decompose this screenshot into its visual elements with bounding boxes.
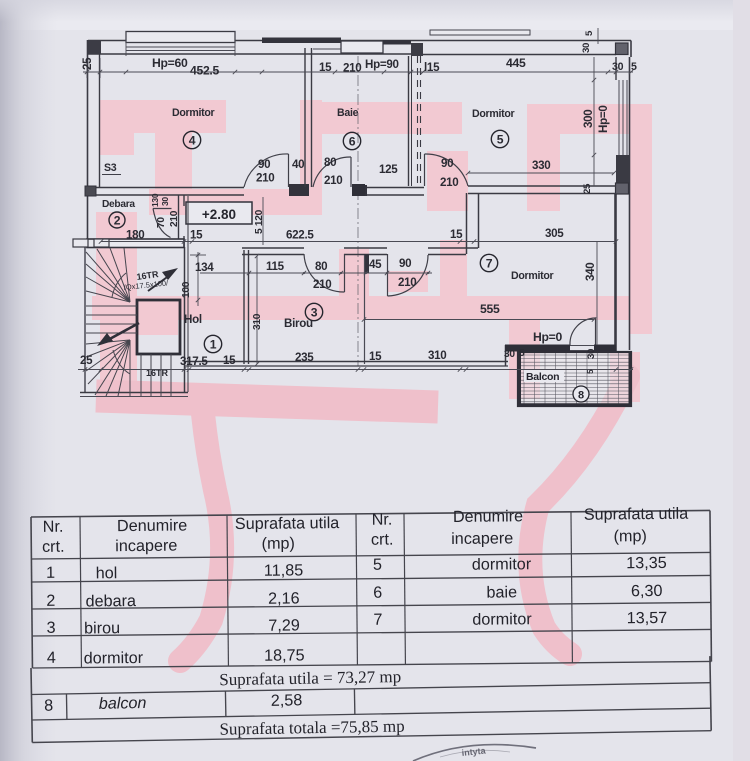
svg-text:125: 125 — [379, 163, 398, 176]
svg-text:Hp=0: Hp=0 — [597, 106, 610, 133]
svg-text:l15: l15 — [424, 61, 440, 74]
svg-text:5: 5 — [497, 132, 504, 146]
svg-text:Suprafata utila: Suprafata utila — [584, 505, 689, 524]
svg-text:210: 210 — [169, 210, 180, 227]
svg-text:317.5: 317.5 — [180, 355, 208, 368]
svg-text:445: 445 — [506, 56, 526, 70]
svg-text:crt.: crt. — [371, 531, 394, 549]
svg-text:2: 2 — [114, 213, 121, 227]
svg-text:birou: birou — [84, 619, 120, 637]
svg-text:2: 2 — [46, 592, 55, 610]
svg-text:7,29: 7,29 — [268, 616, 300, 634]
svg-text:debara: debara — [86, 592, 137, 610]
svg-text:5: 5 — [519, 348, 525, 359]
svg-text:305: 305 — [545, 227, 564, 240]
svg-text:210: 210 — [256, 172, 274, 185]
svg-text:100: 100 — [181, 281, 192, 298]
svg-text:Suprafata totala =75,85 mp: Suprafata totala =75,85 mp — [219, 716, 405, 738]
svg-text:25: 25 — [80, 354, 93, 367]
svg-text:Dormitor: Dormitor — [472, 108, 515, 120]
svg-text:30: 30 — [160, 197, 170, 206]
svg-text:310: 310 — [252, 313, 263, 330]
svg-text:210: 210 — [343, 62, 361, 75]
svg-text:Hp=0: Hp=0 — [533, 330, 562, 344]
svg-text:622.5: 622.5 — [286, 229, 314, 242]
svg-text:8: 8 — [578, 390, 584, 402]
svg-text:dormitor: dormitor — [84, 649, 144, 668]
svg-text:1: 1 — [210, 337, 217, 351]
svg-text:13,57: 13,57 — [627, 609, 668, 627]
svg-text:Denumire: Denumire — [117, 517, 187, 536]
svg-text:15: 15 — [369, 350, 382, 363]
svg-text:Hol: Hol — [184, 313, 202, 326]
svg-text:5: 5 — [585, 369, 595, 374]
svg-text:5: 5 — [631, 61, 637, 73]
svg-text:incapere: incapere — [451, 529, 513, 548]
svg-text:incapere: incapere — [115, 537, 177, 556]
svg-text:dormitor: dormitor — [472, 610, 532, 629]
svg-text:+2.80: +2.80 — [202, 207, 236, 222]
svg-text:115: 115 — [266, 260, 285, 273]
svg-text:90: 90 — [441, 157, 453, 170]
svg-text:Debara: Debara — [102, 199, 135, 210]
svg-text:Dormitor: Dormitor — [172, 107, 215, 119]
svg-text:6: 6 — [349, 134, 356, 148]
svg-text:30: 30 — [586, 349, 597, 359]
svg-text:180: 180 — [126, 229, 144, 242]
svg-text:15: 15 — [223, 354, 236, 367]
svg-text:crt.: crt. — [42, 538, 65, 556]
svg-text:15: 15 — [319, 61, 332, 74]
svg-text:210: 210 — [398, 276, 416, 289]
svg-text:3: 3 — [46, 619, 55, 637]
svg-text:130: 130 — [150, 193, 160, 207]
svg-text:8: 8 — [44, 697, 53, 715]
svg-text:dormitor: dormitor — [472, 555, 532, 574]
svg-text:Hp=90: Hp=90 — [365, 58, 399, 71]
svg-text:80: 80 — [315, 260, 327, 273]
svg-text:40: 40 — [292, 158, 304, 171]
svg-text:5 120: 5 120 — [254, 209, 265, 234]
svg-text:Nr.: Nr. — [43, 518, 64, 536]
svg-text:balcon: balcon — [99, 694, 147, 713]
svg-text:15: 15 — [450, 228, 463, 241]
svg-text:30: 30 — [504, 349, 515, 360]
svg-text:2,58: 2,58 — [271, 691, 303, 710]
svg-text:Suprafata utila: Suprafata utila — [235, 514, 340, 533]
svg-text:80: 80 — [324, 156, 336, 169]
svg-text:4: 4 — [47, 649, 56, 667]
svg-text:25: 25 — [582, 183, 593, 194]
svg-text:6,30: 6,30 — [631, 582, 663, 600]
svg-text:Suprafata utila = 73,27 mp: Suprafata utila = 73,27 mp — [219, 667, 401, 689]
svg-text:Nr.: Nr. — [372, 511, 393, 529]
svg-text:Hp=60: Hp=60 — [152, 56, 188, 70]
svg-text:235: 235 — [295, 351, 314, 364]
svg-text:555: 555 — [480, 302, 500, 316]
svg-text:1: 1 — [46, 564, 55, 582]
svg-text:340: 340 — [584, 263, 597, 281]
svg-text:210: 210 — [313, 278, 331, 291]
svg-text:Balcon: Balcon — [526, 371, 559, 383]
svg-text:hol: hol — [96, 564, 118, 582]
svg-text:11,85: 11,85 — [264, 561, 303, 579]
svg-text:90: 90 — [258, 158, 270, 171]
svg-text:7: 7 — [373, 611, 382, 629]
svg-text:30: 30 — [612, 61, 624, 73]
svg-text:4: 4 — [189, 133, 196, 147]
svg-text:7: 7 — [486, 256, 493, 270]
svg-text:452.5: 452.5 — [190, 64, 220, 78]
svg-text:330: 330 — [532, 159, 550, 172]
svg-text:45: 45 — [369, 258, 382, 271]
svg-text:2,16: 2,16 — [268, 589, 300, 607]
svg-text:30: 30 — [581, 43, 592, 53]
svg-text:(mp): (mp) — [262, 534, 295, 552]
svg-text:(mp): (mp) — [613, 527, 646, 545]
svg-text:baie: baie — [486, 583, 517, 601]
svg-text:13,35: 13,35 — [626, 554, 667, 572]
svg-text:15: 15 — [190, 229, 203, 242]
svg-text:Baie: Baie — [337, 107, 359, 119]
svg-text:Denumire: Denumire — [453, 507, 523, 526]
svg-text:S3: S3 — [104, 162, 117, 174]
svg-text:3: 3 — [311, 305, 318, 319]
svg-text:90: 90 — [399, 257, 411, 270]
svg-text:6: 6 — [373, 584, 382, 602]
svg-text:310: 310 — [428, 349, 446, 362]
svg-text:210: 210 — [324, 174, 342, 187]
svg-text:18,75: 18,75 — [264, 646, 305, 664]
svg-text:210: 210 — [440, 176, 458, 189]
svg-text:5: 5 — [373, 556, 382, 574]
svg-text:25: 25 — [81, 57, 94, 70]
svg-text:134: 134 — [195, 261, 214, 274]
svg-text:Dormitor: Dormitor — [511, 270, 554, 282]
svg-text:70: 70 — [156, 217, 167, 228]
svg-text:300: 300 — [582, 110, 595, 128]
